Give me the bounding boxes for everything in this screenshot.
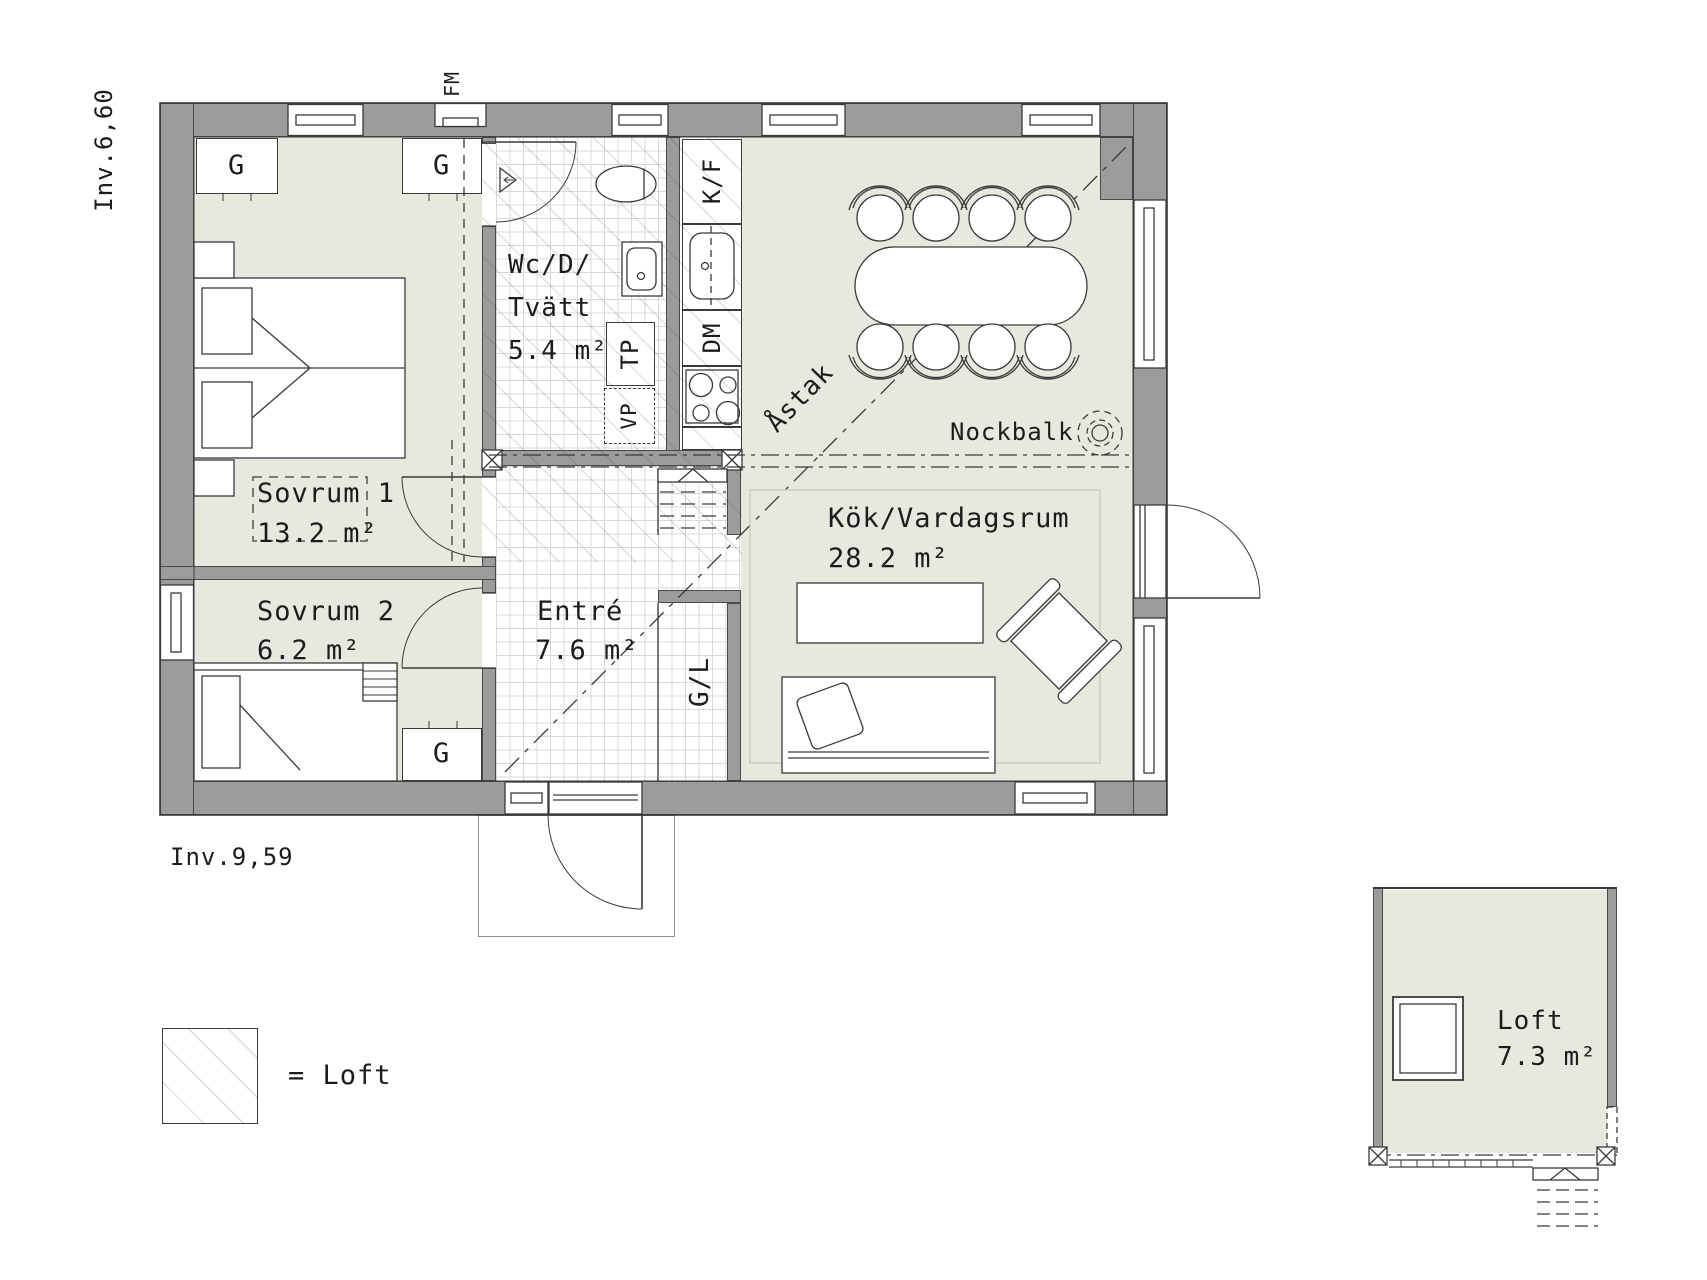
wall-wc-south <box>482 450 742 466</box>
kitchen-living-name: Kök/Vardagsrum <box>828 503 1070 534</box>
loft-plan-name: Loft <box>1497 1006 1564 1036</box>
loft-plan-area: 7.3 m² <box>1497 1042 1597 1072</box>
loft-plan-wall-left <box>1373 888 1383 1153</box>
loft-plan-wall-right <box>1607 888 1617 1107</box>
closet-label: G/L <box>685 657 715 707</box>
entre-area: 7.6 m² <box>535 635 639 666</box>
exterior-wall-left <box>160 103 194 815</box>
sovrum1-area: 13.2 m² <box>257 518 378 549</box>
loft-plan-floor <box>1383 890 1607 1153</box>
wardrobe-label-3: G <box>433 738 450 769</box>
wall-hall-bedrooms-seg4 <box>482 668 496 781</box>
sovrum2-area: 6.2 m² <box>257 635 361 666</box>
kitchen-living-floor <box>741 137 1133 781</box>
exterior-wall-right <box>1133 103 1167 815</box>
interior-width-label: Inv.6,60 <box>90 88 118 212</box>
wc-room-area: 5.4 m² <box>508 336 608 366</box>
fresh-air-vent-label: FM <box>440 71 464 97</box>
entrance-porch <box>478 815 675 937</box>
sovrum1-name: Sovrum 1 <box>257 478 395 509</box>
loft-plan-ladder <box>1533 1168 1598 1226</box>
wall-wc-kitchen <box>666 137 680 466</box>
closet-wall-east <box>727 603 741 781</box>
wall-between-bedrooms <box>160 566 496 580</box>
heat-pump-label: VP <box>617 402 641 429</box>
kitchen-living-area: 28.2 m² <box>828 543 949 574</box>
wc-room-label-line2: Tvätt <box>508 293 591 323</box>
legend-loft-label: = Loft <box>288 1060 392 1091</box>
wardrobe-label-2: G <box>433 150 450 181</box>
dryer-label: TP <box>616 339 644 370</box>
exterior-wall-bottom <box>160 781 1167 815</box>
closet-wall-top <box>658 590 741 603</box>
wall-hall-bedrooms-seg2 <box>482 226 496 477</box>
sink-counter-unit <box>682 224 742 310</box>
entre-name: Entré <box>537 596 623 627</box>
counter-end-unit <box>682 427 742 450</box>
dishwasher-label: DM <box>698 323 726 354</box>
legend-loft-swatch <box>162 1028 258 1124</box>
exterior-wall-top <box>160 103 1167 137</box>
stove-unit <box>682 366 742 427</box>
ridge-beam-label: Nockbalk <box>950 418 1074 446</box>
fridge-freezer-label: K/F <box>698 158 726 204</box>
wardrobe-label-1: G <box>228 150 245 181</box>
floor-plan-canvas: Inv.6,60 FM G G G Wc/D/ Tvätt 5.4 m² TP … <box>0 0 1707 1280</box>
wall-hall-bedrooms-seg1 <box>482 137 496 144</box>
wc-room-label-line1: Wc/D/ <box>508 250 591 280</box>
wall-ladder-niche-east <box>727 466 741 535</box>
interior-length-label: Inv.9,59 <box>170 843 294 871</box>
sovrum2-name: Sovrum 2 <box>257 596 395 627</box>
corner-post-topright <box>1100 137 1133 200</box>
